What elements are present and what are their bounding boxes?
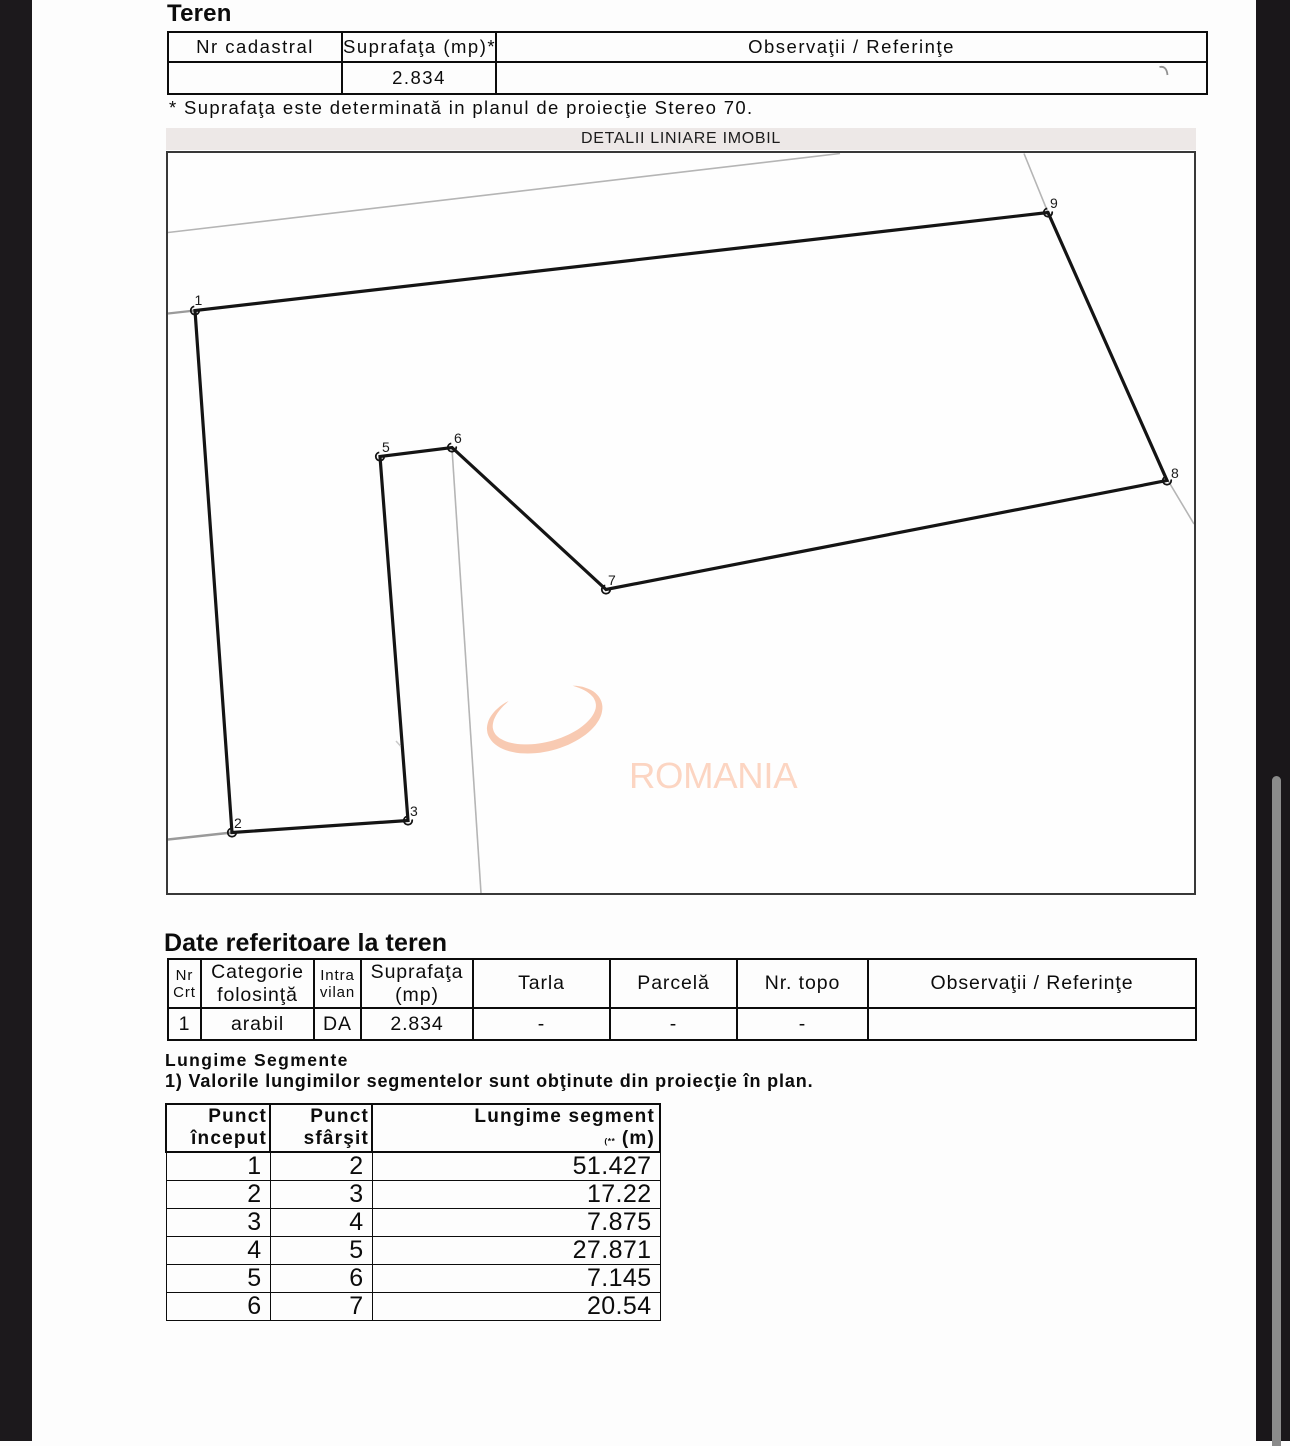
svg-text:1: 1	[195, 292, 203, 308]
svg-text:3: 3	[410, 803, 418, 819]
svg-text:ROMANIA: ROMANIA	[629, 755, 798, 796]
svg-text:7: 7	[608, 572, 616, 588]
svg-text:9: 9	[1050, 195, 1058, 211]
svg-text:6: 6	[454, 430, 462, 446]
svg-text:5: 5	[382, 439, 390, 455]
svg-text:2: 2	[234, 815, 242, 831]
svg-text:8: 8	[1171, 465, 1179, 481]
